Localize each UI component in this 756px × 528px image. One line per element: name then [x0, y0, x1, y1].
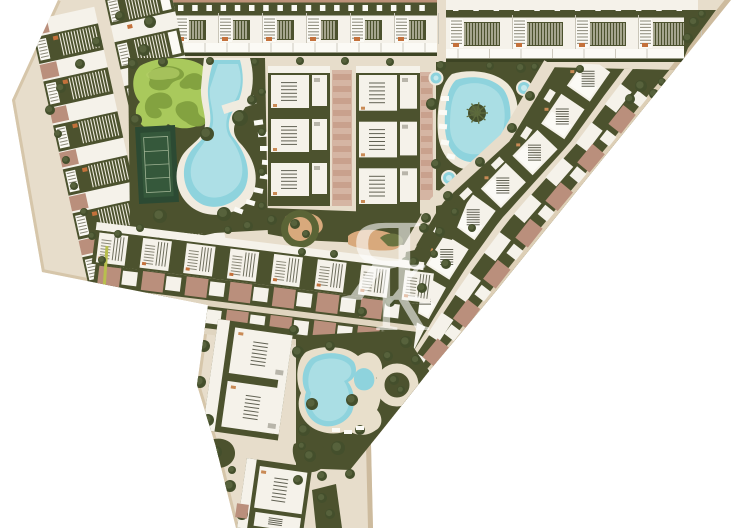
- svg-text:K: K: [374, 241, 430, 352]
